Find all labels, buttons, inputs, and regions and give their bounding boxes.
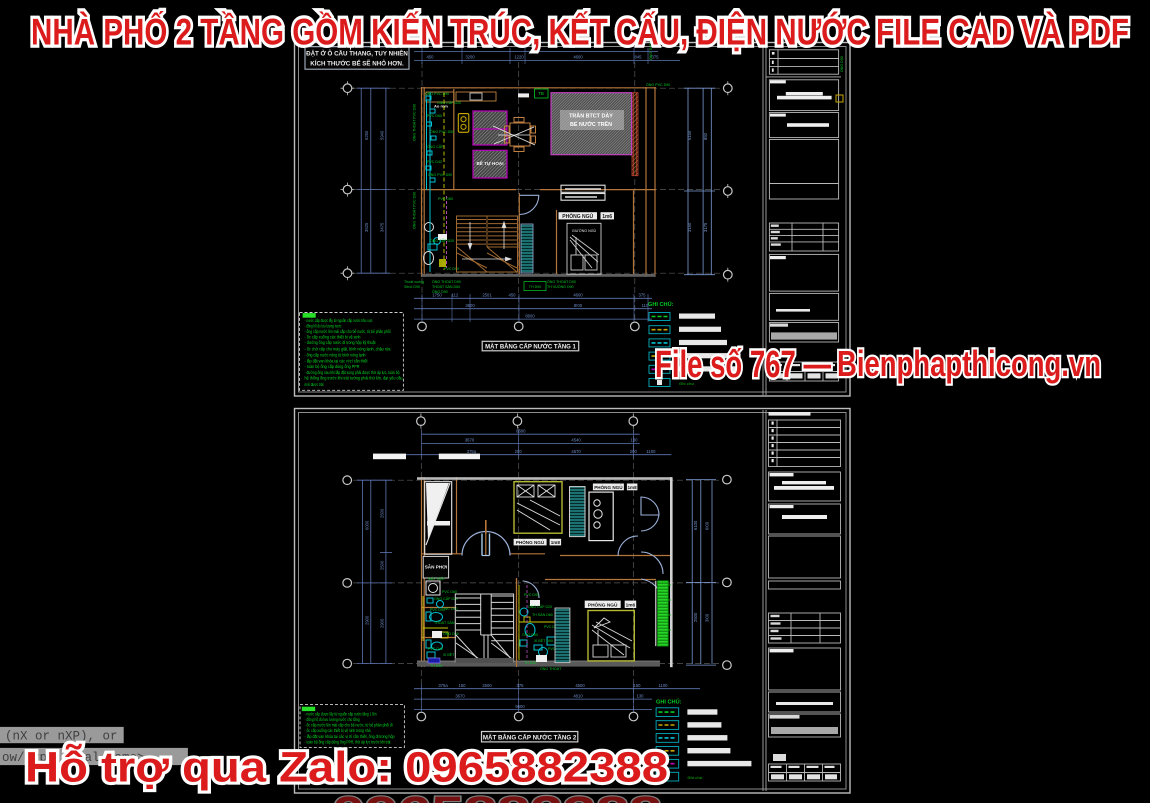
svg-text:GHI CHÚ:: GHI CHÚ: [648, 301, 674, 308]
svg-text:4600: 4600 [573, 293, 583, 298]
svg-text:THOÁT SÀN D60: THOÁT SÀN D60 [432, 285, 460, 289]
svg-text:TH XUỐNG D90: TH XUỐNG D90 [547, 284, 574, 289]
svg-text:Bienphapthicong.vn: Bienphapthicong.vn [837, 343, 1101, 384]
svg-text:XÍ BỆT D90: XÍ BỆT D90 [534, 638, 553, 643]
svg-text:PHÒNG NGỦ: PHÒNG NGỦ [594, 483, 623, 490]
svg-text:9600: 9600 [515, 704, 525, 709]
svg-text:6000: 6000 [365, 520, 370, 530]
svg-text:4600: 4600 [573, 55, 583, 60]
svg-text:MÁY GIẶT: MÁY GIẶT [428, 577, 446, 581]
svg-text:6250: 6250 [364, 130, 369, 140]
svg-text:2900: 2900 [365, 615, 370, 625]
svg-text:ỐNG CẤP D20: ỐNG CẤP D20 [437, 100, 461, 105]
svg-text:TH D90: TH D90 [430, 664, 442, 668]
svg-text:130: 130 [637, 693, 645, 698]
svg-text:2900: 2900 [380, 618, 385, 628]
svg-text:- đường ống cấp nước đi trong: - đường ống cấp nước đi trong hộp kỹ thu… [305, 340, 377, 345]
svg-text:mới được trát: mới được trát [305, 382, 325, 387]
svg-text:TB: TB [538, 91, 544, 96]
svg-text:150: 150 [634, 683, 642, 688]
svg-text:- lắp đặt van khóa tại các vị: - lắp đặt van khóa tại các vị trí cần th… [305, 358, 369, 363]
svg-text:1m6: 1m6 [626, 603, 636, 609]
svg-text:ỐNG THOÁT PVC D90: ỐNG THOÁT PVC D90 [412, 192, 417, 229]
svg-text:ỐNG PVC D90: ỐNG PVC D90 [425, 91, 449, 96]
svg-text:130: 130 [631, 438, 639, 443]
svg-text:0965882388: 0965882388 [332, 788, 662, 803]
svg-text:2500: 2500 [482, 683, 492, 688]
svg-text:(nX or nXP), or: (nX or nXP), or [5, 730, 118, 744]
svg-text:845: 845 [635, 55, 643, 60]
svg-text:PHÒNG NGỦ: PHÒNG NGỦ [562, 212, 593, 220]
svg-text:Hỗ trợ qua Zalo: 0965882388: Hỗ trợ qua Zalo: 0965882388 [25, 743, 668, 792]
svg-text:2500: 2500 [380, 560, 385, 570]
svg-text:4570: 4570 [571, 449, 581, 454]
svg-text:PVC D42: PVC D42 [428, 647, 443, 651]
svg-text:3200: 3200 [465, 55, 475, 60]
svg-text:3475: 3475 [380, 222, 385, 232]
svg-text:1100: 1100 [646, 449, 656, 454]
svg-text:- đồng hồ đo lưu lượng nước ch: - đồng hồ đo lưu lượng nước cho tầng [305, 717, 360, 722]
svg-text:- đồng hồ đo lưu lượng nước: - đồng hồ đo lưu lượng nước [305, 323, 343, 328]
svg-text:1220: 1220 [514, 55, 524, 60]
svg-text:PVC D42: PVC D42 [427, 160, 442, 164]
svg-text:2500: 2500 [380, 508, 385, 518]
svg-text:TH SÀN D60: TH SÀN D60 [532, 613, 553, 617]
svg-text:PVC D60: PVC D60 [438, 197, 453, 201]
svg-text:5940: 5940 [380, 130, 385, 140]
svg-text:8600: 8600 [516, 428, 526, 433]
svg-text:ỐNG D90: ỐNG D90 [432, 289, 448, 294]
svg-text:GHI CHÚ:: GHI CHÚ: [656, 699, 682, 706]
svg-text:ỐNG THOÁT: ỐNG THOÁT [540, 666, 562, 671]
svg-text:ỐNG THOÁT D90: ỐNG THOÁT D90 [432, 279, 461, 284]
svg-text:375: 375 [517, 683, 525, 688]
svg-text:MẶT BẰNG CẤP NƯỚC TẦNG 1: MẶT BẰNG CẤP NƯỚC TẦNG 1 [485, 343, 576, 351]
svg-text:3150: 3150 [687, 222, 692, 232]
svg-text:GIƯỜNG NGỦ: GIƯỜNG NGỦ [572, 228, 597, 233]
svg-text:ỐNG PVC D90: ỐNG PVC D90 [428, 172, 452, 177]
svg-text:ỐNG D90: ỐNG D90 [839, 56, 844, 72]
svg-text:SÂN PHƠI: SÂN PHƠI [425, 564, 448, 570]
svg-text:- ốc cấp xuống các thiết bị vệ: - ốc cấp xuống các thiết bị vệ sinh tron… [305, 728, 371, 733]
svg-text:Sênô D90: Sênô D90 [404, 285, 420, 289]
svg-text:6!00: 6!00 [705, 521, 710, 530]
svg-text:- ốc cấp xuống các thiết bị vệ: - ốc cấp xuống các thiết bị vệ sinh [305, 335, 362, 340]
svg-text:TRẦN BTCT DÀY: TRẦN BTCT DÀY [569, 113, 613, 120]
svg-text:ỐNG CẤP: ỐNG CẤP [427, 144, 444, 149]
svg-text:ỐNG CẤP D20: ỐNG CẤP D20 [430, 238, 454, 243]
svg-text:PVC D60: PVC D60 [427, 114, 442, 118]
svg-text:BỂ NƯỚC TRÊN: BỂ NƯỚC TRÊN [570, 120, 612, 128]
svg-text:- đường ống sau khi lắp đặt xo: - đường ống sau khi lắp đặt xong phải đư… [305, 370, 400, 375]
svg-text:ỐNG CẤP D20: ỐNG CẤP D20 [528, 604, 552, 609]
svg-text:ỐNG D90: ỐNG D90 [522, 632, 538, 637]
svg-text:1m8: 1m8 [551, 540, 561, 545]
svg-text:850: 850 [703, 132, 708, 140]
svg-text:ỐNG THOÁT PVC D90: ỐNG THOÁT PVC D90 [412, 104, 417, 141]
svg-text:TH D90: TH D90 [529, 285, 541, 289]
svg-text:ỐNG CẤP D20: ỐNG CẤP D20 [434, 596, 458, 601]
svg-text:4810: 4810 [573, 693, 583, 698]
svg-text:- ống cấp nước lên mái cấp cho: - ống cấp nước lên mái cấp cho bể nước, … [305, 329, 391, 334]
svg-text:3!00: 3!00 [705, 613, 710, 622]
svg-text:hệ thống ống trước khi trát tư: hệ thống ống trước khi trát tường phải t… [305, 376, 404, 381]
svg-text:150: 150 [459, 683, 467, 688]
svg-text:3525: 3525 [364, 222, 369, 232]
svg-text:112: 112 [452, 293, 459, 298]
svg-text:KÍCH THƯỚC BỂ SẼ NHỎ HƠN.: KÍCH THƯỚC BỂ SẼ NHỎ HƠN. [310, 60, 404, 68]
svg-text:375: 375 [639, 293, 647, 298]
svg-text:1100: 1100 [658, 683, 668, 688]
svg-text:MẶT BẰNG CẤP NƯỚC TẦNG 2: MẶT BẰNG CẤP NƯỚC TẦNG 2 [483, 733, 577, 741]
svg-text:3175: 3175 [703, 222, 708, 232]
svg-text:- toàn bộ ống cấp dùng ống PPR: - toàn bộ ống cấp dùng ống PPR [305, 364, 360, 369]
svg-text:6150: 6150 [687, 130, 692, 140]
svg-text:File số 767 —: File số 767 — [655, 344, 831, 386]
svg-text:Ghi chú: Ghi chú [687, 775, 702, 780]
svg-text:PVC D60: PVC D60 [442, 590, 457, 594]
svg-text:ỐNG THOÁT D90: ỐNG THOÁT D90 [547, 279, 576, 284]
svg-text:- nước cấp được lấy từ nguồn c: - nước cấp được lấy từ nguồn cấp nước tầ… [305, 711, 377, 716]
svg-text:8!00: 8!00 [574, 303, 583, 308]
svg-text:- ốc chờ cấp cho máy giặt, bìn: - ốc chờ cấp cho máy giặt, bình nóng lạn… [305, 346, 392, 351]
svg-text:XÍ BỆT: XÍ BỆT [443, 652, 455, 657]
svg-text:PVC D90: PVC D90 [430, 608, 445, 612]
svg-text:NHÀ PHỐ 2 TẦNG GỒM KIẾN TRÚC,: NHÀ PHỐ 2 TẦNG GỒM KIẾN TRÚC, KẾT CẤU, Đ… [31, 11, 1129, 53]
svg-text:375a: 375a [467, 449, 477, 454]
svg-text:8600: 8600 [525, 313, 535, 318]
svg-text:BỂ TỰ HOẠI: BỂ TỰ HOẠI [476, 160, 503, 166]
svg-text:200: 200 [515, 449, 523, 454]
svg-text:200: 200 [630, 449, 638, 454]
svg-text:1m8: 1m8 [627, 485, 637, 490]
svg-text:- ống cấp nước nóng từ bình nó: - ống cấp nước nóng từ bình nóng lạnh [305, 353, 366, 358]
svg-text:6100: 6100 [693, 520, 698, 530]
svg-text:2500: 2500 [693, 612, 698, 622]
svg-text:3670: 3670 [465, 438, 475, 443]
svg-text:- lắp đặt van khóa tại các vị: - lắp đặt van khóa tại các vị trí cần th… [305, 734, 396, 739]
svg-text:PVC D90: PVC D90 [524, 593, 539, 597]
svg-text:1m6: 1m6 [602, 214, 612, 220]
svg-text:ỐNG PVC D90: ỐNG PVC D90 [646, 82, 670, 87]
svg-text:TH D90: TH D90 [524, 661, 536, 665]
svg-text:4540: 4540 [571, 438, 581, 443]
svg-text:4500: 4500 [575, 683, 585, 688]
svg-text:2501: 2501 [482, 293, 492, 298]
svg-text:Thoát xuống: Thoát xuống [404, 280, 424, 284]
svg-text:- nước cấp được lấy từ nguồn c: - nước cấp được lấy từ nguồn cấp nước kh… [305, 318, 374, 323]
svg-text:3670: 3670 [455, 693, 465, 698]
svg-text:375a: 375a [438, 683, 448, 688]
svg-text:THOÁT SÀN: THOÁT SÀN [434, 621, 455, 625]
svg-text:3600: 3600 [465, 303, 475, 308]
svg-text:PHÒNG NGỦ: PHÒNG NGỦ [516, 538, 545, 545]
svg-text:- ốc cấp nước lên mái cấp cho: - ốc cấp nước lên mái cấp cho bể nước, t… [305, 723, 393, 728]
svg-text:450: 450 [427, 55, 435, 60]
svg-text:ỐNG PVC D90: ỐNG PVC D90 [430, 129, 454, 134]
svg-text:450: 450 [509, 293, 517, 298]
